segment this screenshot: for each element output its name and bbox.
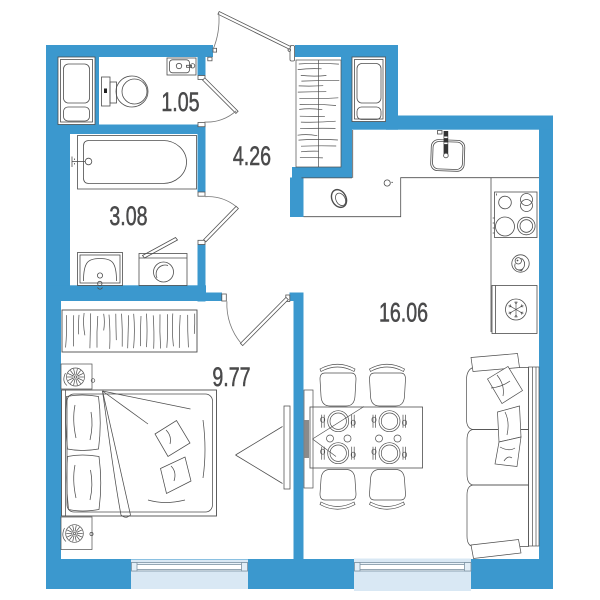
svg-text:4.26: 4.26 [233,141,271,171]
svg-text:1.05: 1.05 [161,87,199,117]
svg-text:16.06: 16.06 [379,298,428,328]
svg-text:9.77: 9.77 [212,362,250,392]
svg-text:3.08: 3.08 [109,201,147,231]
